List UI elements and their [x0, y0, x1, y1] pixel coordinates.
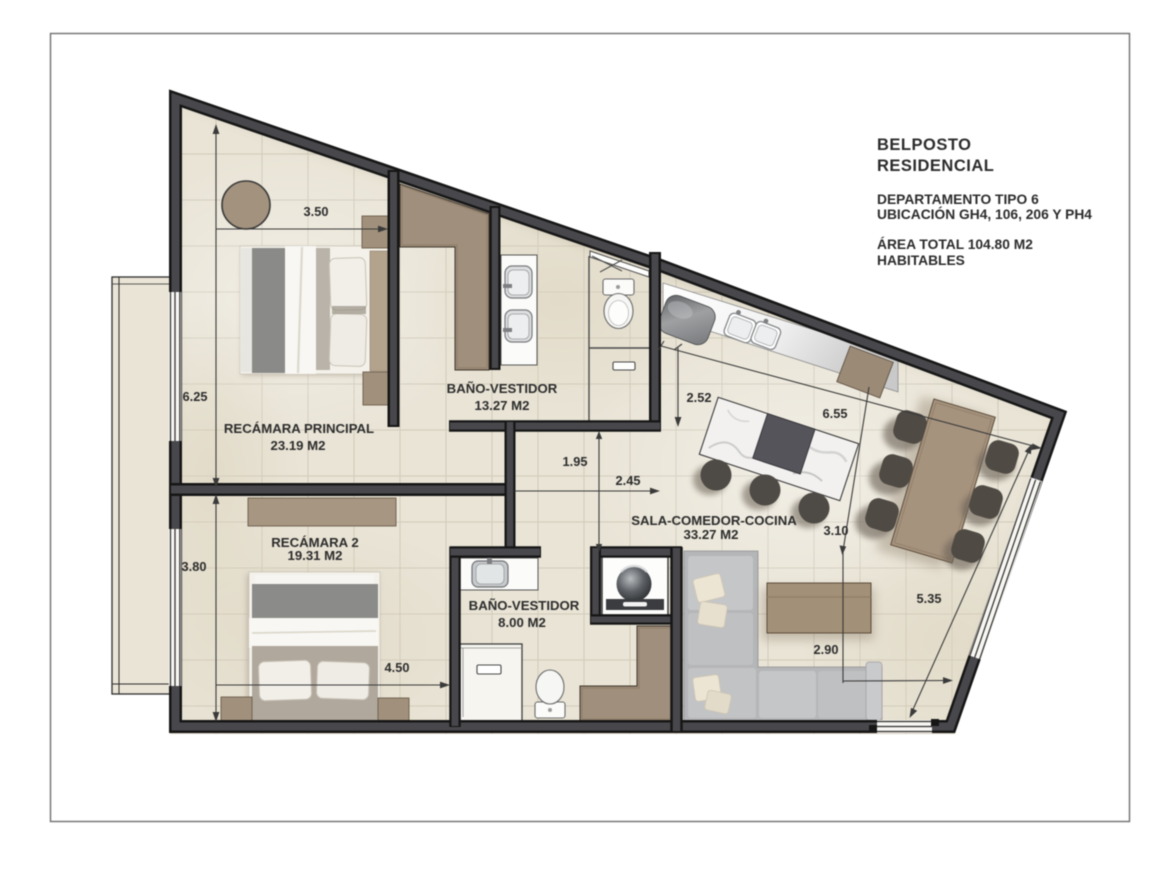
svg-text:2.52: 2.52	[687, 390, 712, 405]
svg-text:3.10: 3.10	[824, 523, 849, 538]
svg-text:3.50: 3.50	[304, 204, 329, 219]
svg-text:4.50: 4.50	[385, 660, 410, 675]
svg-text:RECÁMARA PRINCIPAL: RECÁMARA PRINCIPAL	[224, 421, 374, 436]
svg-text:3.80: 3.80	[182, 559, 207, 574]
svg-text:BAÑO-VESTIDOR: BAÑO-VESTIDOR	[469, 598, 580, 613]
svg-text:BELPOSTO: BELPOSTO	[877, 136, 971, 154]
svg-text:UBICACIÓN GH4, 106, 206 Y PH4: UBICACIÓN GH4, 106, 206 Y PH4	[877, 205, 1092, 222]
svg-text:HABITABLES: HABITABLES	[877, 253, 965, 268]
svg-text:33.27 M2: 33.27 M2	[684, 527, 739, 542]
svg-text:19.31 M2: 19.31 M2	[288, 548, 343, 563]
svg-text:2.90: 2.90	[814, 642, 839, 657]
svg-text:2.45: 2.45	[616, 473, 641, 488]
svg-text:BAÑO-VESTIDOR: BAÑO-VESTIDOR	[447, 381, 558, 396]
svg-text:6.25: 6.25	[183, 389, 208, 404]
svg-text:23.19 M2: 23.19 M2	[271, 438, 326, 453]
svg-text:RESIDENCIAL: RESIDENCIAL	[877, 157, 994, 175]
svg-text:1.95: 1.95	[563, 454, 588, 469]
svg-text:6.55: 6.55	[823, 406, 848, 421]
svg-text:8.00 M2: 8.00 M2	[498, 615, 546, 630]
svg-text:5.35: 5.35	[917, 591, 942, 606]
svg-text:SALA-COMEDOR-COCINA: SALA-COMEDOR-COCINA	[631, 513, 797, 528]
svg-text:DEPARTAMENTO TIPO 6: DEPARTAMENTO TIPO 6	[877, 192, 1039, 207]
svg-text:13.27 M2: 13.27 M2	[475, 398, 530, 413]
svg-text:ÁREA TOTAL 104.80 M2: ÁREA TOTAL 104.80 M2	[877, 236, 1033, 252]
